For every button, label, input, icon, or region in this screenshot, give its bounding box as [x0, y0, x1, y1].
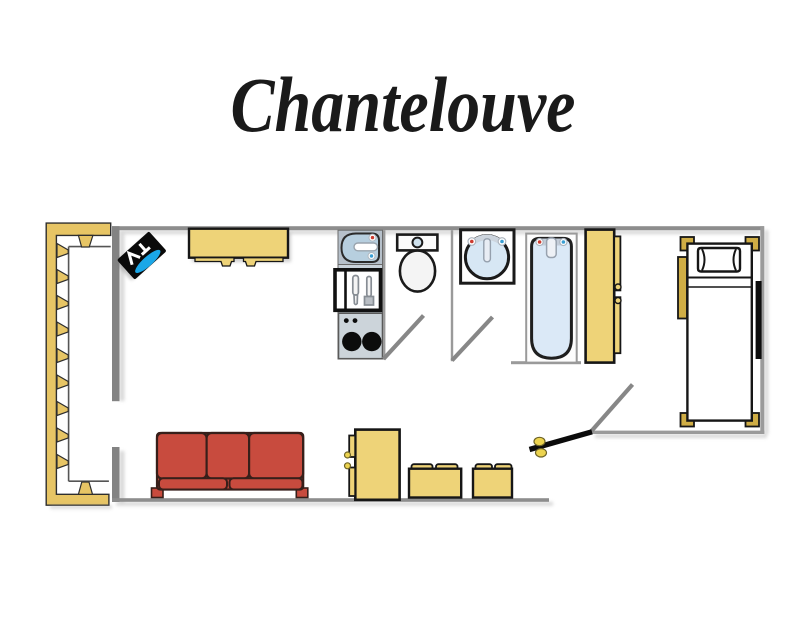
svg-text:Chantelouve: Chantelouve	[231, 61, 576, 148]
